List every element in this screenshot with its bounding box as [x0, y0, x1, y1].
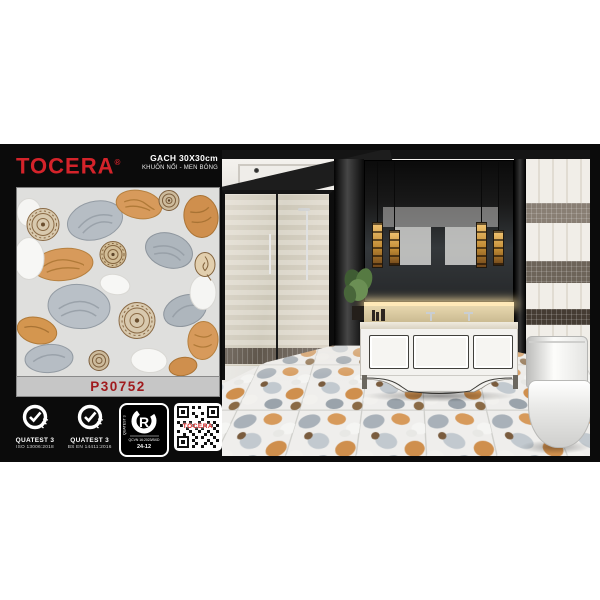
- wall-sconce: [493, 230, 504, 266]
- cr-certification-mark: QUATEST 3 R QCVN 16:2023/BXD 24-12: [119, 403, 169, 457]
- toiletry-bottle: [381, 309, 385, 321]
- sconce-rod: [394, 162, 395, 230]
- qr-code: TOCERA: [174, 403, 222, 451]
- cabinet-door-panel: [413, 335, 469, 369]
- cr-cert-number: 24-12: [137, 444, 151, 450]
- cabinet-shadow: [362, 390, 516, 402]
- sconce-slats: [390, 231, 399, 265]
- pebble-tile-graphic: [17, 188, 219, 377]
- product-info-panel: TOCERA® GẠCH 30X30cm KHUÔN NỔI - MEN BÓN…: [0, 144, 228, 462]
- cabinet-door-panel: [369, 335, 409, 369]
- mosaic-band: [526, 309, 590, 325]
- qr-overlay-text: TOCERA: [174, 423, 222, 430]
- poster-band: TOCERA® GẠCH 30X30cm KHUÔN NỔI - MEN BÓN…: [0, 144, 600, 462]
- shower-door-handle: [269, 234, 271, 274]
- cabinet-leg: [513, 375, 518, 389]
- ceiling-top-band: [222, 150, 590, 159]
- downlight: [254, 168, 259, 173]
- toiletry-bottle: [376, 312, 379, 321]
- product-image: TOCERA® GẠCH 30X30cm KHUÔN NỔI - MEN BÓN…: [0, 0, 600, 600]
- bathroom-render: [222, 150, 590, 456]
- check-circle-icon: [21, 403, 49, 431]
- quatest-standard: BS EN 14411:2016: [65, 445, 115, 450]
- sconce-rod: [377, 162, 378, 222]
- vanity-backsplash: [364, 306, 514, 322]
- mirror-reflection-panel: [395, 227, 431, 265]
- certification-row: QUATEST 3 ISO 13006:2018 QUATEST 3 BS EN…: [10, 403, 222, 459]
- product-header: GẠCH 30X30cm KHUÔN NỔI - MEN BÓNG: [110, 153, 218, 171]
- cr-side-label: QUATEST 3: [123, 415, 127, 435]
- sconce-slats: [494, 231, 503, 265]
- sconce-slats: [373, 223, 382, 267]
- sconce-slats: [477, 223, 486, 267]
- product-size-label: GẠCH 30X30cm: [110, 153, 218, 163]
- quatest-label: QUATEST 3: [65, 437, 115, 444]
- faucet-icon: [426, 312, 435, 314]
- quatest-standard: ISO 13006:2018: [10, 445, 60, 450]
- quatest-badge-1: QUATEST 3 ISO 13006:2018: [10, 403, 60, 450]
- quatest-label: QUATEST 3: [10, 437, 60, 444]
- mosaic-band: [526, 203, 590, 223]
- mosaic-band: [526, 261, 590, 283]
- toilet-bowl: [528, 380, 590, 448]
- vanity-mirror: [364, 160, 514, 302]
- cr-regulation: QCVN 16:2023/BXD: [129, 438, 160, 442]
- quatest-badge-2: QUATEST 3 BS EN 14411:2016: [65, 403, 115, 450]
- toilet: [520, 336, 590, 456]
- check-circle-icon: [76, 403, 104, 431]
- vanity-cabinet: [360, 329, 518, 375]
- faucet-icon: [464, 312, 473, 314]
- cr-mark-icon: QUATEST 3 R QCVN 16:2023/BXD 24-12: [121, 405, 163, 451]
- shower-glass-frame: [276, 194, 278, 380]
- wall-sconce: [389, 230, 400, 266]
- cabinet-leg: [362, 375, 367, 389]
- sconce-rod: [481, 162, 482, 222]
- wall-sconce: [476, 222, 487, 268]
- sconce-rod: [498, 162, 499, 230]
- brand-logo-text: TOCERA: [16, 153, 115, 178]
- product-finish-label: KHUÔN NỔI - MEN BÓNG: [110, 165, 218, 171]
- cabinet-door-panel: [473, 335, 513, 369]
- product-code-banner: P30752: [16, 376, 220, 397]
- tile-sample-image: [16, 187, 220, 378]
- toilet-tank-lid: [529, 341, 585, 343]
- potted-plant: [340, 264, 376, 326]
- cr-letter: R: [139, 414, 149, 430]
- wall-sconce: [372, 222, 383, 268]
- brand-logo: TOCERA®: [16, 151, 121, 178]
